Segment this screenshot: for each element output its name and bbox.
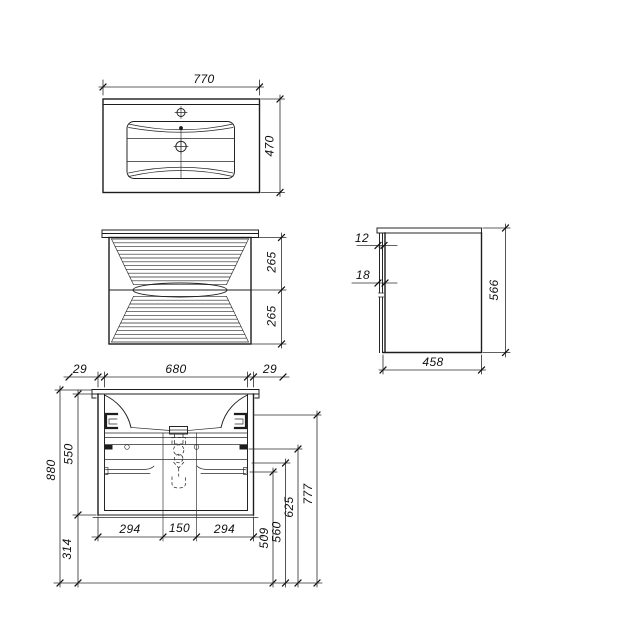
drawer-front-edge: [378, 233, 384, 353]
dim-625-label: 625: [282, 496, 296, 517]
basin-section: [105, 395, 248, 431]
dim-12-label: 12: [355, 231, 369, 245]
wall-bracket-right: [235, 414, 246, 428]
cabinet-body-outline: [109, 238, 251, 345]
bottom-drawer-front: [112, 296, 249, 342]
drawer-cutout-right: [197, 466, 247, 475]
dim-width-bottom: 294 150 294: [92, 517, 263, 541]
dim-566: 566: [483, 224, 510, 357]
dim-drawer-heights: 265 265: [252, 233, 286, 348]
dim-heights-left: 880 550 314: [44, 386, 96, 587]
dim-29-left-label: 29: [72, 362, 87, 376]
siphon-trap-hidden: [172, 435, 186, 489]
dim-770: 770: [99, 72, 264, 95]
top-drawer-front: [112, 239, 249, 285]
dim-18: 18: [352, 268, 397, 286]
dim-294-left-label: 294: [118, 522, 140, 536]
dim-29-right-label: 29: [262, 362, 277, 376]
faucet-hole-icon: [175, 107, 187, 119]
dim-777-label: 777: [301, 482, 315, 504]
vanity-technical-drawing: 770 470 265 265: [0, 0, 642, 642]
washbasin-top-view: 770 470: [99, 72, 285, 197]
dim-880-label: 880: [44, 459, 58, 480]
drawer-cutout-left: [105, 466, 155, 475]
dim-566-label: 566: [487, 279, 501, 300]
dim-314-label: 314: [60, 538, 74, 559]
dim-560-label: 560: [270, 521, 284, 542]
dim-levels-right: 509 560 625 777: [249, 411, 321, 587]
dim-18-label: 18: [356, 268, 370, 282]
side-body-outline: [383, 233, 482, 353]
dim-width-top: 29 680 29: [64, 362, 289, 387]
dim-150-label: 150: [169, 521, 190, 535]
dim-550-label: 550: [62, 443, 76, 464]
inner-rails: [105, 433, 248, 460]
cabinet-section-view: 29 680 29 880 550 314 509 560 625 777: [44, 362, 322, 587]
dim-680-label: 680: [165, 362, 186, 376]
cabinet-front-view: 265 265: [102, 230, 286, 348]
dim-458-label: 458: [422, 355, 443, 369]
overflow-hole-icon: [179, 126, 183, 130]
countertop-edge: [377, 228, 482, 233]
dim-294-right-label: 294: [213, 522, 235, 536]
dim-470-label: 470: [263, 135, 277, 156]
dim-458: 458: [379, 355, 486, 374]
dim-470: 470: [261, 95, 285, 197]
dim-265-bottom-label: 265: [265, 305, 279, 327]
sink-rim: [92, 390, 259, 399]
dim-12: 12: [355, 231, 397, 249]
carcass-outline: [93, 394, 258, 518]
cabinet-side-view: 12 18 566 458: [352, 224, 510, 374]
technical-drawing-page: 770 470 265 265: [0, 0, 642, 642]
wall-bracket-left: [106, 414, 117, 428]
dim-265-top-label: 265: [265, 251, 279, 273]
countertop-strip: [102, 230, 259, 238]
drain-hole-icon: [174, 140, 188, 154]
dim-770-label: 770: [193, 72, 214, 86]
